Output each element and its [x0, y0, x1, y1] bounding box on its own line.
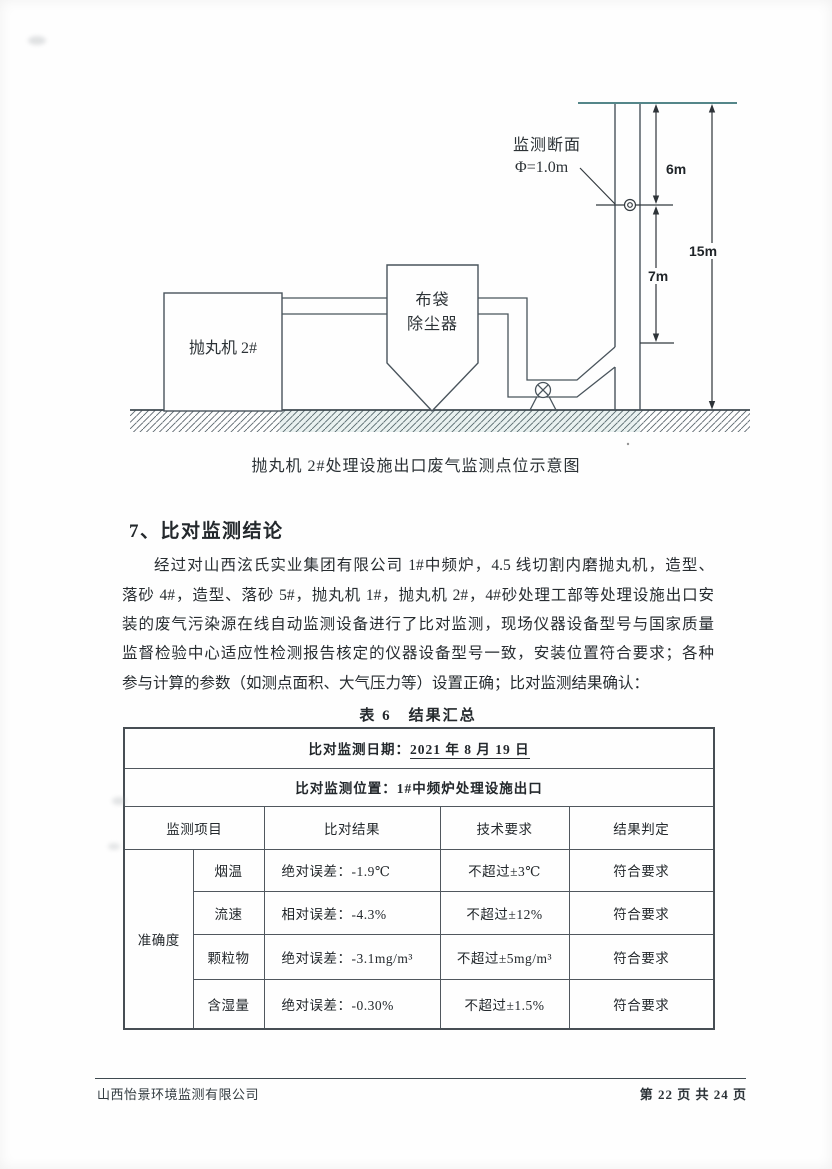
footer-page-number: 第 22 页 共 24 页 — [640, 1084, 747, 1103]
result-cell: 绝对误差：-0.30% — [264, 979, 440, 1029]
footer-divider — [95, 1078, 746, 1079]
item-cell: 含湿量 — [193, 979, 264, 1029]
result-cell: 绝对误差：-3.1mg/m³ — [264, 934, 440, 979]
judgement-cell: 符合要求 — [569, 891, 714, 934]
requirement-cell: 不超过±5mg/m³ — [440, 934, 569, 979]
date-value: 2021 年 8 月 19 日 — [410, 742, 530, 759]
results-table: 比对监测日期：2021 年 8 月 19 日 比对监测位置：1#中频炉处理设施出… — [123, 727, 715, 1030]
ground-hatch — [130, 410, 750, 432]
section-heading: 7、比对监测结论 — [129, 516, 284, 543]
dim-label-7m: 7m — [646, 268, 670, 284]
header-item: 监测项目 — [124, 806, 264, 849]
monitoring-location-cell: 比对监测位置：1#中频炉处理设施出口 — [124, 768, 714, 806]
duct-machine-to-collector — [282, 298, 387, 314]
table-title: 表 6 结果汇总 — [123, 704, 713, 725]
monitoring-level — [580, 168, 674, 343]
footer-company: 山西怡景环境监测有限公司 — [97, 1084, 259, 1103]
paragraph-line: 监督检验中心适应性检测报告核定的仪器设备型号一致，安装位置符合要求；各种 — [122, 643, 714, 667]
dust-collector — [387, 265, 478, 411]
judgement-cell: 符合要求 — [569, 849, 714, 891]
collector-label-line1: 布袋 — [387, 291, 478, 311]
group-label-cell: 准确度 — [124, 849, 193, 1029]
result-cell: 绝对误差：-1.9℃ — [264, 849, 440, 891]
table-row: 比对监测日期：2021 年 8 月 19 日 — [124, 728, 714, 768]
fan-symbol — [530, 383, 556, 411]
document-page: 监测断面 Φ=1.0m 6m 7m 15m 抛丸机 2# 布袋 除尘器 抛丸机 … — [0, 0, 832, 1169]
monitoring-point-symbol — [625, 200, 636, 211]
item-cell: 烟温 — [193, 849, 264, 891]
scan-smudge — [28, 36, 46, 45]
table-row: 比对监测位置：1#中频炉处理设施出口 — [124, 768, 714, 806]
stack — [615, 104, 640, 410]
paragraph-line: 经过对山西泫氏实业集团有限公司 1#中频炉，4.5 线切割内磨抛丸机，造型、 — [122, 555, 714, 579]
duct-collector-to-stack — [478, 298, 615, 397]
paragraph-line: 参与计算的参数（如测点面积、大气压力等）设置正确；比对监测结果确认： — [122, 673, 714, 697]
collector-label-line2: 除尘器 — [387, 315, 478, 335]
machine-box-label: 抛丸机 2# — [164, 339, 282, 359]
requirement-cell: 不超过±12% — [440, 891, 569, 934]
dim-label-6m: 6m — [664, 161, 688, 177]
requirement-cell: 不超过±3℃ — [440, 849, 569, 891]
table-row: 颗粒物 绝对误差：-3.1mg/m³ 不超过±5mg/m³ 符合要求 — [124, 934, 714, 979]
requirement-cell: 不超过±1.5% — [440, 979, 569, 1029]
paragraph-line: 落砂 4#，造型、落砂 5#，抛丸机 1#，抛丸机 2#，4#砂处理工部等处理设… — [122, 585, 714, 609]
figure-caption: 抛丸机 2#处理设施出口废气监测点位示意图 — [0, 452, 832, 476]
table-row: 含湿量 绝对误差：-0.30% 不超过±1.5% 符合要求 — [124, 979, 714, 1029]
table-header-row: 监测项目 比对结果 技术要求 结果判定 — [124, 806, 714, 849]
date-label: 比对监测日期： — [308, 742, 410, 757]
monitoring-section-label: 监测断面 — [513, 136, 581, 156]
leader-line — [580, 168, 615, 204]
result-cell: 相对误差：-4.3% — [264, 891, 440, 934]
monitoring-point-diagram — [0, 0, 832, 480]
header-judgement: 结果判定 — [569, 806, 714, 849]
dim-label-15m: 15m — [687, 243, 719, 259]
table-row: 流速 相对误差：-4.3% 不超过±12% 符合要求 — [124, 891, 714, 934]
header-requirement: 技术要求 — [440, 806, 569, 849]
header-result: 比对结果 — [264, 806, 440, 849]
scan-smudge — [108, 843, 120, 850]
paragraph-line: 装的废气污染源在线自动监测设备进行了比对监测，现场仪器设备型号与国家质量 — [122, 614, 714, 638]
item-cell: 流速 — [193, 891, 264, 934]
item-cell: 颗粒物 — [193, 934, 264, 979]
judgement-cell: 符合要求 — [569, 979, 714, 1029]
scan-dot-artifact — [627, 443, 629, 445]
judgement-cell: 符合要求 — [569, 934, 714, 979]
monitoring-section-diameter: Φ=1.0m — [515, 158, 568, 178]
table-row: 准确度 烟温 绝对误差：-1.9℃ 不超过±3℃ 符合要求 — [124, 849, 714, 891]
monitoring-date-cell: 比对监测日期：2021 年 8 月 19 日 — [124, 728, 714, 768]
scan-smudge — [112, 797, 126, 805]
